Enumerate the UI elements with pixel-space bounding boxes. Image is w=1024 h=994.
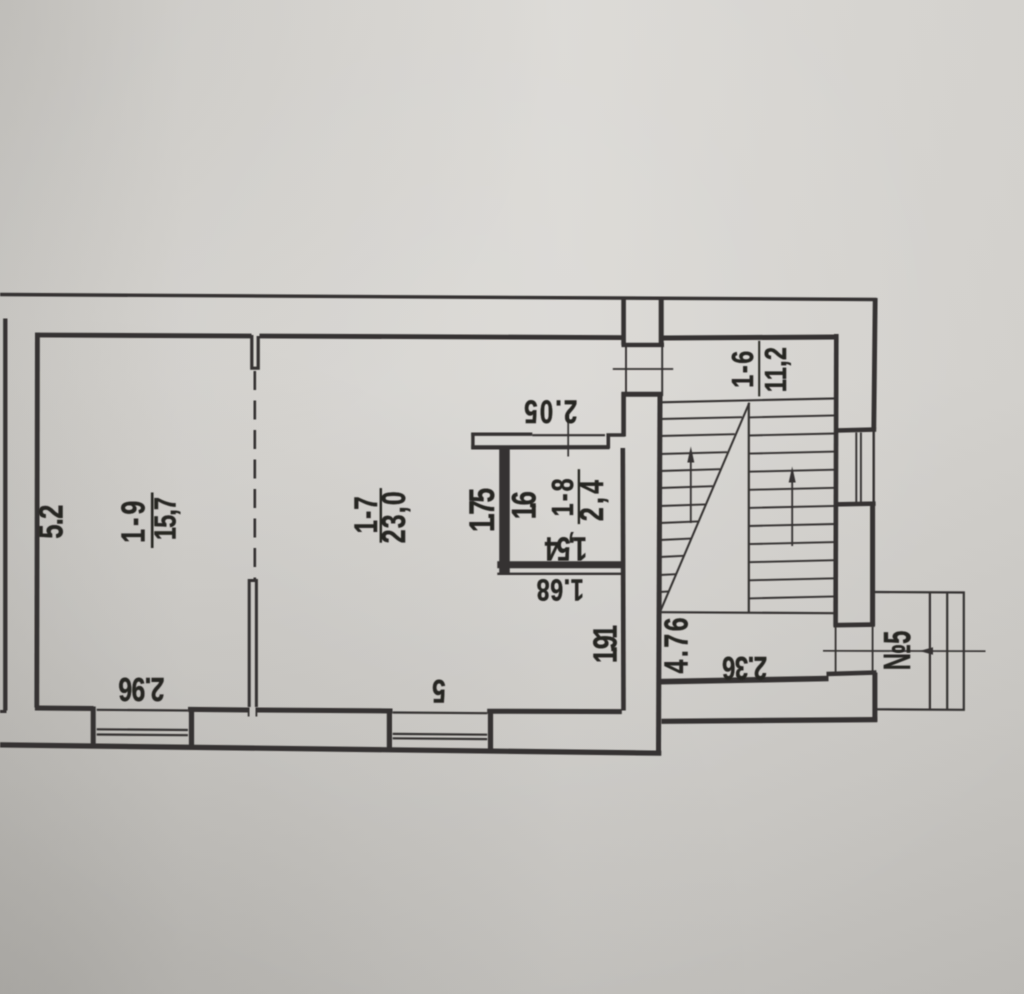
- svg-text:1.75: 1.75: [462, 488, 502, 532]
- svg-text:1,54: 1,54: [544, 529, 587, 565]
- svg-text:№5: №5: [875, 631, 918, 670]
- svg-text:1.6: 1.6: [506, 491, 543, 519]
- svg-text:1.68: 1.68: [537, 572, 584, 607]
- svg-text:2,4: 2,4: [575, 479, 611, 521]
- svg-text:5.2: 5.2: [33, 505, 70, 539]
- svg-text:2.36: 2.36: [722, 650, 767, 686]
- svg-text:5: 5: [432, 673, 445, 709]
- svg-text:2.05: 2.05: [524, 394, 577, 430]
- svg-text:1-6: 1-6: [725, 351, 760, 388]
- svg-text:11,2: 11,2: [758, 347, 793, 392]
- svg-text:4.76: 4.76: [659, 617, 695, 673]
- svg-text:2.96: 2.96: [118, 670, 164, 706]
- svg-text:1.91: 1.91: [588, 625, 624, 663]
- svg-text:15,7: 15,7: [147, 497, 182, 540]
- svg-text:23,0: 23,0: [377, 491, 413, 543]
